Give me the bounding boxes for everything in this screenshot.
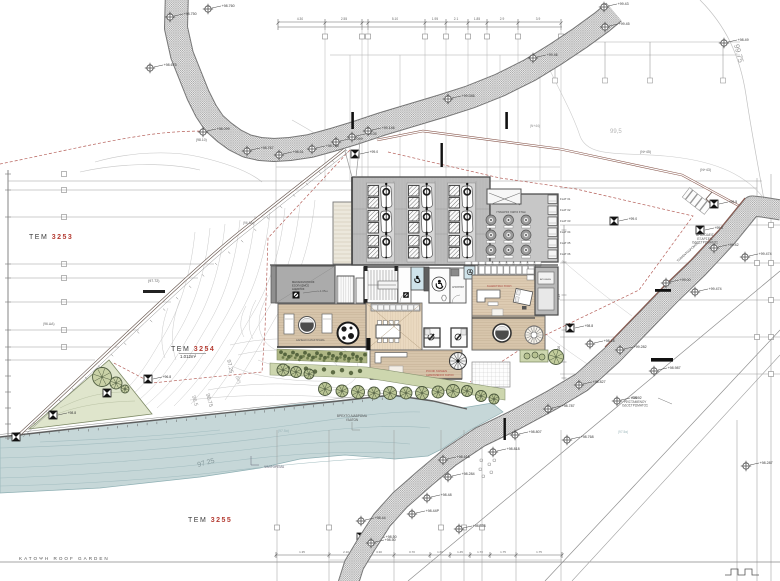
svg-text:+98.099: +98.099 bbox=[217, 127, 230, 131]
svg-text:TEM 3255: TEM 3255 bbox=[188, 517, 232, 524]
svg-text:+98.44P: +98.44P bbox=[426, 509, 440, 513]
svg-text:+98.44: +98.44 bbox=[375, 516, 386, 520]
svg-text:+99.43: +99.43 bbox=[618, 2, 629, 6]
svg-text:ΔΙΑΜ/ΣΜΕΝΟΣ ΧΩΡΟΣ: ΔΙΑΜ/ΣΜΕΝΟΣ ΧΩΡΟΣ bbox=[426, 373, 454, 377]
svg-text:FLAT 03: FLAT 03 bbox=[560, 219, 571, 223]
svg-text:+98.675: +98.675 bbox=[164, 63, 177, 67]
svg-text:+98.8: +98.8 bbox=[585, 324, 594, 328]
svg-text:+98.284: +98.284 bbox=[462, 472, 475, 476]
svg-text:+99.46: +99.46 bbox=[547, 53, 558, 57]
svg-text:+98.767: +98.767 bbox=[261, 146, 274, 150]
svg-text:ΔΩΜΑΤΟΣ: ΔΩΜΑΤΟΣ bbox=[292, 287, 305, 291]
svg-text:(97.72): (97.72) bbox=[148, 279, 159, 283]
svg-text:+98.8: +98.8 bbox=[68, 411, 77, 415]
svg-text:ΑΠΟΘΗΚΗ: ΑΠΟΘΗΚΗ bbox=[452, 286, 464, 289]
svg-text:(97.5α): (97.5α) bbox=[618, 430, 628, 434]
svg-text:3.9: 3.9 bbox=[536, 17, 541, 21]
svg-text:+98.48: +98.48 bbox=[441, 493, 452, 497]
svg-text:+98.807: +98.807 bbox=[529, 430, 542, 434]
svg-text:+1.05ω: +1.05ω bbox=[318, 289, 329, 293]
svg-text:+98.287: +98.287 bbox=[760, 461, 773, 465]
svg-text:ΡΟΟΦ ΓΑΡΔΕΝ: ΡΟΟΦ ΓΑΡΔΕΝ bbox=[426, 369, 447, 373]
svg-text:+98.18: +98.18 bbox=[604, 339, 615, 343]
svg-text:ΚΑΤΟΨΗ ROOF GARDEN: ΚΑΤΟΨΗ ROOF GARDEN bbox=[19, 556, 110, 561]
svg-text:+99.046: +99.046 bbox=[462, 94, 475, 98]
svg-text:FLAT 04: FLAT 04 bbox=[560, 230, 571, 234]
svg-text:5.10: 5.10 bbox=[392, 17, 398, 21]
svg-text:TEM 3254: TEM 3254 bbox=[171, 346, 215, 353]
svg-text:+99.146: +99.146 bbox=[382, 126, 395, 130]
svg-text:1.70: 1.70 bbox=[477, 550, 483, 554]
svg-text:+99.45: +99.45 bbox=[619, 22, 630, 26]
svg-text:1.95: 1.95 bbox=[432, 17, 438, 21]
svg-text:TEM 3253: TEM 3253 bbox=[29, 234, 73, 241]
svg-text:+98.787: +98.787 bbox=[562, 404, 575, 408]
svg-text:1.75: 1.75 bbox=[500, 550, 506, 554]
svg-text:FLAT 02: FLAT 02 bbox=[560, 208, 571, 212]
svg-text:+98.768: +98.768 bbox=[581, 435, 594, 439]
svg-text:1.85: 1.85 bbox=[474, 17, 480, 21]
svg-text:ΨΑΛΤΟΡΕΜΑ: ΨΑΛΤΟΡΕΜΑ bbox=[264, 465, 285, 469]
svg-text:(96.ΔΑ): (96.ΔΑ) bbox=[43, 322, 55, 326]
svg-text:+98.987: +98.987 bbox=[668, 366, 681, 370]
svg-text:3.30: 3.30 bbox=[376, 550, 382, 554]
svg-text:+98.353: +98.353 bbox=[473, 524, 486, 528]
svg-text:+99.42: +99.42 bbox=[728, 243, 739, 247]
svg-text:FLAT 05: FLAT 05 bbox=[560, 241, 571, 245]
svg-text:+99.0: +99.0 bbox=[370, 150, 379, 154]
svg-text:(N+44): (N+44) bbox=[530, 124, 540, 128]
svg-text:+98.51: +98.51 bbox=[293, 150, 304, 154]
svg-text:+99.00: +99.00 bbox=[680, 278, 691, 282]
svg-text:(96.ΔΑ): (96.ΔΑ) bbox=[243, 221, 254, 225]
svg-text:1.45: 1.45 bbox=[457, 550, 463, 554]
svg-text:(N+45): (N+45) bbox=[640, 150, 651, 154]
svg-text:+99.282: +99.282 bbox=[634, 345, 647, 349]
svg-text:+98.50: +98.50 bbox=[385, 538, 396, 542]
svg-text:ΔΑΠΕΔΟ ΚΑΤΑΣΤΡΩΜΑ: ΔΑΠΕΔΟ ΚΑΤΑΣΤΡΩΜΑ bbox=[296, 338, 325, 342]
svg-text:+98.418: +98.418 bbox=[457, 455, 470, 459]
svg-text:+98.750: +98.750 bbox=[184, 12, 197, 16]
svg-text:+99.0: +99.0 bbox=[629, 217, 638, 221]
svg-text:2.55: 2.55 bbox=[341, 17, 347, 21]
svg-text:FLAT 01: FLAT 01 bbox=[560, 197, 571, 201]
svg-text:ΚΑΘΙΣΤΙΚΟ ΤΡΑΠ: ΚΑΘΙΣΤΙΚΟ ΤΡΑΠ bbox=[487, 284, 511, 288]
svg-text:1.35: 1.35 bbox=[299, 550, 305, 554]
svg-text:ΑΠΟΘΗΚΗ: ΑΠΟΘΗΚΗ bbox=[540, 278, 551, 281]
svg-text:(N+43): (N+43) bbox=[700, 168, 711, 172]
svg-text:+99.5: +99.5 bbox=[729, 200, 738, 204]
svg-text:+99.0: +99.0 bbox=[715, 226, 724, 230]
svg-text:+98.827: +98.827 bbox=[593, 380, 606, 384]
svg-text:(97.5α): (97.5α) bbox=[278, 429, 289, 433]
svg-text:+98.818: +98.818 bbox=[507, 447, 520, 451]
svg-text:+99.474: +99.474 bbox=[709, 287, 722, 291]
svg-text:+98.49: +98.49 bbox=[738, 38, 749, 42]
svg-text:4.30: 4.30 bbox=[297, 17, 303, 21]
svg-text:1.75: 1.75 bbox=[536, 550, 542, 554]
svg-text:ΥΠΑΙΘΡΙΟΙ ΧΩΡΟΙ ΣΤΑΘ.: ΥΠΑΙΘΡΙΟΙ ΧΩΡΟΙ ΣΤΑΘ. bbox=[496, 210, 527, 214]
svg-text:+98.760: +98.760 bbox=[222, 4, 235, 8]
svg-text:ΕΞΟΠΛΙΣΜΟΣ: ΕΞΟΠΛΙΣΜΟΣ bbox=[292, 284, 310, 288]
svg-text:ΜΗΧΑΝΟΛΟΓΙΚΟΣ: ΜΗΧΑΝΟΛΟΓΙΚΟΣ bbox=[292, 280, 315, 284]
svg-text:2.10: 2.10 bbox=[343, 550, 349, 554]
svg-text:+99.474: +99.474 bbox=[759, 252, 772, 256]
svg-text:2.1: 2.1 bbox=[454, 17, 459, 21]
svg-text:(98.10): (98.10) bbox=[196, 138, 207, 142]
svg-text:99,5: 99,5 bbox=[610, 129, 622, 135]
svg-text:2.9: 2.9 bbox=[500, 17, 505, 21]
svg-text:0.70: 0.70 bbox=[409, 550, 415, 554]
svg-text:1.012m²: 1.012m² bbox=[180, 354, 197, 359]
svg-text:+96.8: +96.8 bbox=[163, 375, 172, 379]
svg-text:FLAT 06: FLAT 06 bbox=[560, 252, 571, 256]
